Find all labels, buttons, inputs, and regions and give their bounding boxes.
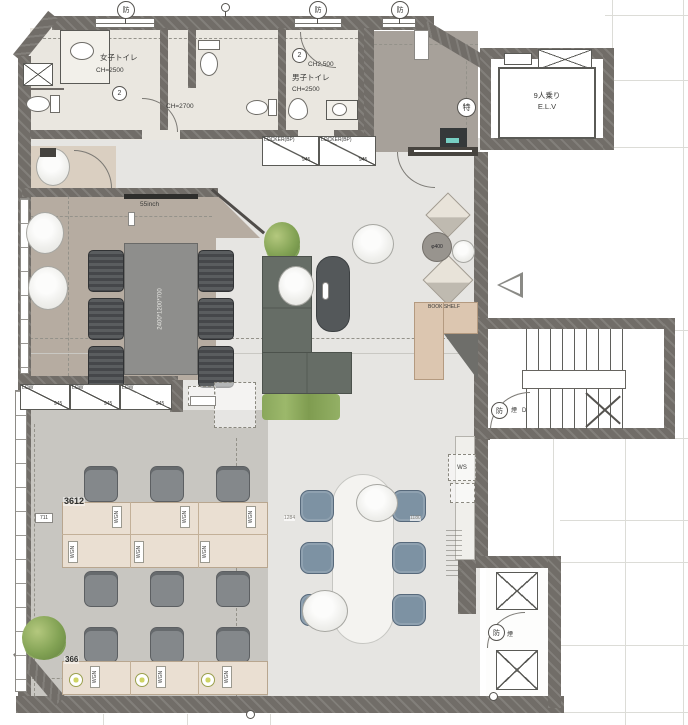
grid-line — [553, 438, 554, 562]
desk-island — [62, 502, 268, 568]
small-tag — [322, 282, 329, 300]
grid-line — [560, 520, 688, 521]
stair-treads-lower — [526, 388, 626, 429]
elevator-motor — [504, 53, 532, 65]
mark-stem — [125, 19, 126, 24]
meeting-chair — [88, 346, 124, 388]
office-chair — [150, 466, 184, 502]
office-machine — [214, 382, 256, 428]
toilet — [26, 96, 50, 112]
mark-stem — [225, 12, 226, 17]
lounge-chair-sketch — [26, 212, 64, 254]
desk-unit-tag: WGN — [156, 666, 166, 688]
small-tag — [128, 212, 135, 226]
appliance-box — [450, 483, 475, 503]
washbasin — [70, 42, 94, 60]
locker-dim: 945 — [359, 158, 367, 163]
desk-unit-tag: WGN — [246, 506, 256, 528]
desk-unit-label: WGN — [92, 671, 98, 683]
stair-treads-upper — [526, 329, 626, 371]
meeting-table-size: 2400*1200*700 — [158, 288, 164, 329]
desk-grommet — [135, 673, 149, 687]
desk-unit-tag: WGN — [68, 541, 78, 563]
appliance-notes — [446, 528, 462, 576]
desk-unit-tag: WGN — [180, 506, 190, 528]
desk-unit-tag: WGN — [112, 506, 122, 528]
lounge-chair-sketch — [28, 266, 68, 310]
tv-label: 55inch — [140, 202, 159, 209]
grid-line — [558, 645, 688, 646]
dim-label: 1284 — [284, 516, 295, 521]
office-chair — [84, 627, 118, 663]
stall-partition — [24, 88, 64, 90]
reception-desk — [40, 148, 56, 157]
mens-toilet-label: 男子トイレ — [292, 74, 330, 82]
womens-toilet-ch: CH=2500 — [96, 68, 124, 75]
toilet-tank — [268, 99, 277, 116]
meeting-chair — [198, 298, 234, 340]
chair-blue — [392, 594, 426, 626]
desk-unit-tag: WGN — [90, 666, 100, 688]
desk-unit-label: WGN — [182, 511, 188, 523]
keyplan-mark: 2 — [292, 48, 307, 63]
meeting-chair — [88, 298, 124, 340]
desk-grommet — [201, 673, 215, 687]
urinal — [288, 98, 308, 120]
meeting-chair — [88, 250, 124, 292]
grid-line — [560, 712, 688, 713]
right-wall-lower — [474, 439, 488, 560]
stair-right-wall — [664, 318, 675, 439]
chair-blue — [300, 490, 334, 522]
tv-55inch — [124, 194, 198, 199]
office-chair — [84, 571, 118, 607]
desk-divider — [198, 502, 199, 568]
grid-line — [187, 714, 188, 725]
grid-line — [103, 714, 104, 725]
womens-toilet-label: 女子トイレ — [100, 54, 138, 62]
sink-label: WS — [457, 465, 467, 471]
duct-shaft — [496, 650, 538, 690]
low-dim: 945 — [156, 402, 164, 407]
elevator-wall-right — [603, 48, 614, 150]
door-type-mark: D — [522, 408, 526, 414]
fire-door-mark: 防 — [488, 624, 505, 641]
smoke-mark: 煙 — [511, 408, 517, 414]
meeting-chair — [198, 250, 234, 292]
survey-point — [246, 710, 255, 719]
elevator-wall-left — [480, 48, 491, 150]
locker-label: LOCKER(BP) — [321, 138, 352, 143]
stool-sketch — [452, 240, 475, 263]
toilet-tank — [50, 95, 60, 113]
fire-shutter-mark: 防 — [117, 1, 135, 19]
toilet-tank — [198, 40, 220, 50]
desk-unit-label: WGN — [70, 546, 76, 558]
desk-grommet — [69, 673, 83, 687]
office-chair — [150, 571, 184, 607]
elevator-label-group: 9人乗り E.L.V — [492, 80, 602, 122]
desk-unit-tag: WGN — [222, 666, 232, 688]
office-chair — [216, 627, 250, 663]
grid-line — [612, 80, 688, 81]
grid-line — [605, 15, 688, 16]
desk-unit-label: WGN — [248, 511, 254, 523]
person-sketch — [356, 484, 398, 522]
small-tag — [190, 396, 216, 406]
workstation-sink: WS — [448, 454, 476, 481]
person-sketch — [278, 266, 314, 306]
desk-unit-label: WGN — [158, 671, 164, 683]
elevator-wall-bottom — [480, 138, 614, 150]
desk-unit-tag: WGN — [134, 541, 144, 563]
sofa-horizontal — [262, 352, 352, 394]
survey-point — [221, 3, 230, 12]
fire-door-mark: 防 — [491, 402, 508, 419]
desk-unit-tag: WGN — [200, 541, 210, 563]
chair-blue — [300, 542, 334, 574]
person-sketch — [352, 224, 394, 264]
window — [294, 18, 342, 28]
grid-line — [270, 714, 271, 725]
mark-stem — [317, 19, 318, 24]
desk-unit-label: WGN — [202, 546, 208, 558]
office-chair — [216, 466, 250, 502]
storefront-wall-right — [474, 152, 488, 326]
mens-toilet-ch-note: CH2,500 — [308, 62, 334, 69]
keyplan-mark: 2 — [112, 86, 127, 101]
stair-landing — [522, 370, 626, 389]
low-label: LOW — [22, 386, 33, 391]
grid-line — [558, 562, 688, 563]
grid-line — [683, 0, 684, 725]
dashed-line — [68, 196, 69, 376]
bookshelf-side — [414, 302, 444, 380]
dim-label: 1180 — [410, 516, 421, 521]
side-dim-label: 711 — [40, 516, 48, 521]
planter-box — [262, 394, 340, 420]
desk-divider — [130, 661, 131, 695]
desk-divider — [198, 661, 199, 695]
desk-island-dim: 3612 — [63, 497, 85, 506]
grid-line — [612, 0, 613, 52]
low-label: LOW — [122, 386, 133, 391]
locker-label: LOCKER(BP) — [264, 138, 295, 143]
round-table-dia: φ400 — [431, 245, 443, 250]
door-knob-symbol — [489, 692, 498, 701]
toilet-partition-wall — [278, 28, 286, 136]
fire-shutter-mark: 防 — [309, 1, 327, 19]
grid-line — [612, 147, 688, 148]
special-mark: 特 — [457, 98, 476, 117]
desk-unit-label: WGN — [224, 671, 230, 683]
person-sketch — [302, 590, 348, 632]
toilet-partition-wall — [188, 28, 196, 88]
mens-toilet-ch: CH=2500 — [292, 87, 320, 94]
office-chair — [84, 466, 118, 502]
desk-divider — [130, 502, 131, 568]
bookshelf-label: BOOK SHELF — [428, 305, 460, 310]
office-chair — [150, 627, 184, 663]
toilet — [200, 52, 218, 76]
desk-divider — [62, 534, 268, 535]
hall-ch: CH=2700 — [166, 104, 194, 111]
side-dim-tag: 711 — [35, 513, 53, 523]
duct-shaft — [496, 572, 538, 610]
washbasin — [332, 103, 347, 116]
locker-dim: 945 — [302, 158, 310, 163]
interphone-screen — [446, 138, 459, 143]
desk-unit-label: WGN — [114, 511, 120, 523]
meeting-table: 2400*1200*700 — [124, 243, 198, 375]
stair-top-wall — [474, 318, 675, 329]
entry-sign-tag — [414, 30, 429, 60]
bottom-wall — [16, 696, 564, 713]
desk-row-dim: 366 — [64, 656, 79, 664]
low-dim: 945 — [54, 402, 62, 407]
elevator-name: E.L.V — [538, 103, 556, 111]
desk-unit-label: WGN — [136, 546, 142, 558]
grid-line — [625, 438, 626, 725]
toilet — [246, 100, 268, 115]
round-side-table: φ400 — [422, 232, 452, 262]
elevator-capacity: 9人乗り — [534, 92, 561, 100]
chair-blue — [392, 542, 426, 574]
low-label: LOW — [72, 386, 83, 391]
duct-shaft — [23, 63, 53, 86]
low-dim: 945 — [104, 402, 112, 407]
mark-stem — [399, 19, 400, 24]
floor-plan: 女子トイレ CH=2500 2 CH=2700 2 CH2,500 男子トイレ … — [0, 0, 688, 725]
plant — [22, 616, 66, 660]
smoke-mark: 煙 — [507, 632, 513, 638]
office-chair — [216, 571, 250, 607]
fire-shutter-mark: 防 — [391, 1, 409, 19]
service-right-wall — [548, 556, 561, 708]
